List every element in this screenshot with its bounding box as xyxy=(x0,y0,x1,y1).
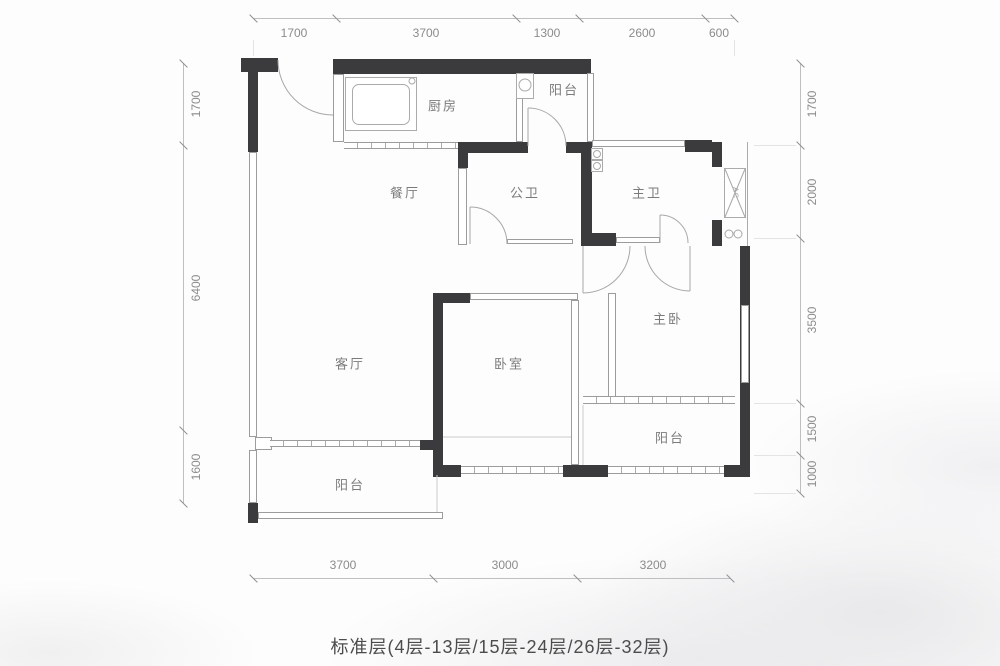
dim-left-3: 1600 xyxy=(189,454,203,481)
dim-top-1: 1700 xyxy=(281,26,308,40)
kitchen-left-wall xyxy=(333,74,344,142)
wall-segment xyxy=(433,465,461,477)
corridor-top-wall xyxy=(616,237,660,243)
extension-line xyxy=(253,40,254,56)
room-label-balcony-bottom: 阳台 xyxy=(335,475,365,494)
dim-top-4: 2600 xyxy=(629,26,656,40)
master-bedroom-window xyxy=(741,305,749,383)
kitchen-sink xyxy=(352,84,410,125)
living-balcony-window xyxy=(270,440,420,447)
wall-segment xyxy=(724,465,750,477)
room-label-balcony-top: 阳台 xyxy=(549,80,579,99)
bath-left-wall xyxy=(458,168,467,245)
wall-segment xyxy=(582,233,616,246)
floor-plan-page: { "title_caption": "标准层(4层-13层/15层-24层/2… xyxy=(0,0,1000,666)
wall-segment xyxy=(712,142,722,167)
wall-segment xyxy=(458,142,528,153)
master-bath-top-wall xyxy=(592,140,685,147)
balcony-right-wall xyxy=(587,73,594,142)
wall-segment xyxy=(248,503,258,523)
extension-line xyxy=(734,40,735,56)
room-label-kitchen: 厨房 xyxy=(428,96,458,115)
dim-line-left xyxy=(183,63,184,503)
dim-line-bottom xyxy=(253,578,730,579)
bedroom-bottom-window xyxy=(461,466,563,474)
dim-right-5: 1000 xyxy=(805,461,819,488)
room-label-living: 客厅 xyxy=(335,354,365,373)
dim-line-top xyxy=(253,18,734,19)
extension-line xyxy=(754,145,796,146)
extension-line xyxy=(754,455,796,456)
dim-right-3: 3500 xyxy=(805,307,819,334)
room-label-balcony-right: 阳台 xyxy=(655,428,685,447)
wall-segment xyxy=(712,220,722,246)
wall-segment xyxy=(333,59,591,74)
extension-line xyxy=(754,403,796,404)
dim-left-2: 6400 xyxy=(189,275,203,302)
room-label-public-bath: 公卫 xyxy=(510,183,540,202)
wall-segment xyxy=(248,58,258,152)
bedroom-divider-wall xyxy=(608,293,616,398)
room-label-bedroom: 卧室 xyxy=(494,354,524,373)
wall-segment xyxy=(685,140,712,152)
room-label-master-bedroom: 主卧 xyxy=(653,309,683,328)
dim-bottom-1: 3700 xyxy=(330,558,357,572)
window-wall xyxy=(249,152,257,437)
master-balcony-window xyxy=(583,396,735,404)
window-wall xyxy=(249,450,257,503)
room-label-dining: 餐厅 xyxy=(390,183,420,202)
dim-top-5: 600 xyxy=(709,26,729,40)
bath-bottom-wall xyxy=(507,239,573,244)
kitchen-window xyxy=(344,142,458,149)
wall-segment xyxy=(420,440,443,450)
bedroom-top-wall xyxy=(470,293,578,300)
wall-segment xyxy=(433,293,470,303)
extension-line xyxy=(754,238,796,239)
washer-box xyxy=(516,73,534,99)
dim-bottom-2: 3000 xyxy=(492,558,519,572)
wall-segment xyxy=(241,58,278,72)
dim-bottom-3: 3200 xyxy=(640,558,667,572)
bedroom-right-wall xyxy=(571,300,579,465)
bath-fixture xyxy=(591,148,603,160)
balcony-bottom-wall xyxy=(258,512,443,519)
dim-right-4: 1500 xyxy=(805,416,819,443)
dim-right-2: 2000 xyxy=(805,179,819,206)
room-label-master-bath: 主卫 xyxy=(632,183,662,202)
wall-segment xyxy=(458,142,468,168)
dim-line-right xyxy=(800,63,801,493)
dim-top-2: 3700 xyxy=(413,26,440,40)
dim-top-3: 1300 xyxy=(534,26,561,40)
balcony-bottom-window xyxy=(608,466,724,474)
dim-right-1: 1700 xyxy=(805,91,819,118)
ac-unit-label: AC xyxy=(732,187,739,199)
extension-line xyxy=(754,493,796,494)
dim-left-1: 1700 xyxy=(189,91,203,118)
floor-caption: 标准层(4层-13层/15层-24层/26层-32层) xyxy=(330,633,669,659)
bath-fixture xyxy=(591,160,603,172)
shaft-edge-line xyxy=(747,142,748,246)
wall-segment xyxy=(563,465,608,477)
